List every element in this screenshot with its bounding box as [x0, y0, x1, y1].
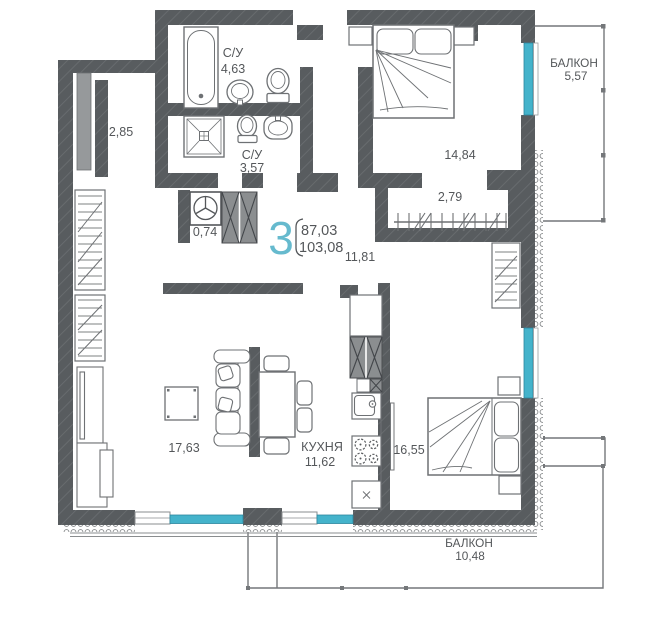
- room-label-bedroom2-area: 16,55: [393, 443, 424, 457]
- room-label-kitchen-area: 11,62: [305, 455, 335, 469]
- sofa: [214, 350, 250, 446]
- bedroom-2: [428, 377, 521, 494]
- nightstand: [498, 377, 520, 395]
- room-label-bath1-name: С/У: [223, 46, 244, 60]
- bidet: [238, 115, 258, 143]
- room-label-bath1-area: 4,63: [221, 62, 245, 76]
- left-storage: [77, 73, 91, 170]
- window-balcony-right: [524, 43, 533, 115]
- floor-plan-page: С/У 4,63 С/У 3,57 0,74 2,85 11,81 14,84 …: [0, 0, 666, 625]
- apartment-summary: 3 87,03 103,08: [268, 212, 343, 264]
- window-living: [170, 515, 243, 524]
- vent-duct-hatch: [222, 192, 257, 243]
- room-label-balcony-bottom-name: БАЛКОН: [445, 536, 493, 550]
- room-label-kitchen-name: КУХНЯ: [301, 440, 343, 454]
- bathroom-2: [184, 115, 292, 157]
- wardrobe: [75, 295, 105, 361]
- kitchen-cabinet-low: [352, 481, 381, 508]
- sliding-door: [391, 403, 395, 470]
- cabinet: [77, 443, 113, 507]
- room-label-storage-area: 2,85: [109, 125, 133, 139]
- kitchen-cabinet: [350, 295, 382, 336]
- window-kitchen: [317, 515, 353, 524]
- sink: [227, 80, 253, 105]
- wardrobe: [75, 190, 105, 290]
- room-label-bath2-name: С/У: [242, 148, 263, 162]
- sink: [264, 116, 292, 139]
- double-bed: [428, 398, 521, 475]
- stove: [352, 436, 381, 466]
- small-hatch-unit: [370, 379, 382, 392]
- wardrobe: [492, 243, 520, 308]
- room-label-bath2-area: 3,57: [240, 161, 264, 175]
- room-label-balcony-bottom-area: 10,48: [455, 549, 485, 563]
- apartment-total-area: 103,08: [299, 240, 343, 256]
- bathtub: [184, 27, 218, 108]
- room-label-hall-area: 11,81: [345, 250, 375, 264]
- toilet: [267, 69, 289, 103]
- room-label-closet-area: 2,79: [438, 190, 462, 204]
- room-label-vent-area: 0,74: [193, 225, 217, 239]
- room-label-balcony-right-area: 5,57: [565, 69, 588, 83]
- window-bedroom2: [524, 328, 533, 398]
- balcony-right-outline: [535, 24, 606, 223]
- nightstand: [349, 27, 372, 45]
- double-bed: [373, 25, 454, 118]
- coffee-table: [165, 387, 198, 420]
- floor-plan: С/У 4,63 С/У 3,57 0,74 2,85 11,81 14,84 …: [0, 0, 666, 625]
- room-label-balcony-right-name: БАЛКОН: [550, 56, 598, 70]
- nightstand: [452, 27, 474, 45]
- apartment-rooms-count: 3: [268, 212, 294, 264]
- room-label-bedroom1-area: 14,84: [444, 148, 475, 162]
- nightstand: [499, 476, 521, 494]
- kitchen-sink: [352, 393, 381, 419]
- shower: [184, 116, 224, 157]
- room-label-living-area: 17,63: [168, 441, 199, 455]
- apartment-living-area: 87,03: [301, 223, 337, 239]
- tv-stand: [77, 367, 103, 443]
- living-room: [77, 350, 312, 507]
- fridge: [350, 337, 382, 378]
